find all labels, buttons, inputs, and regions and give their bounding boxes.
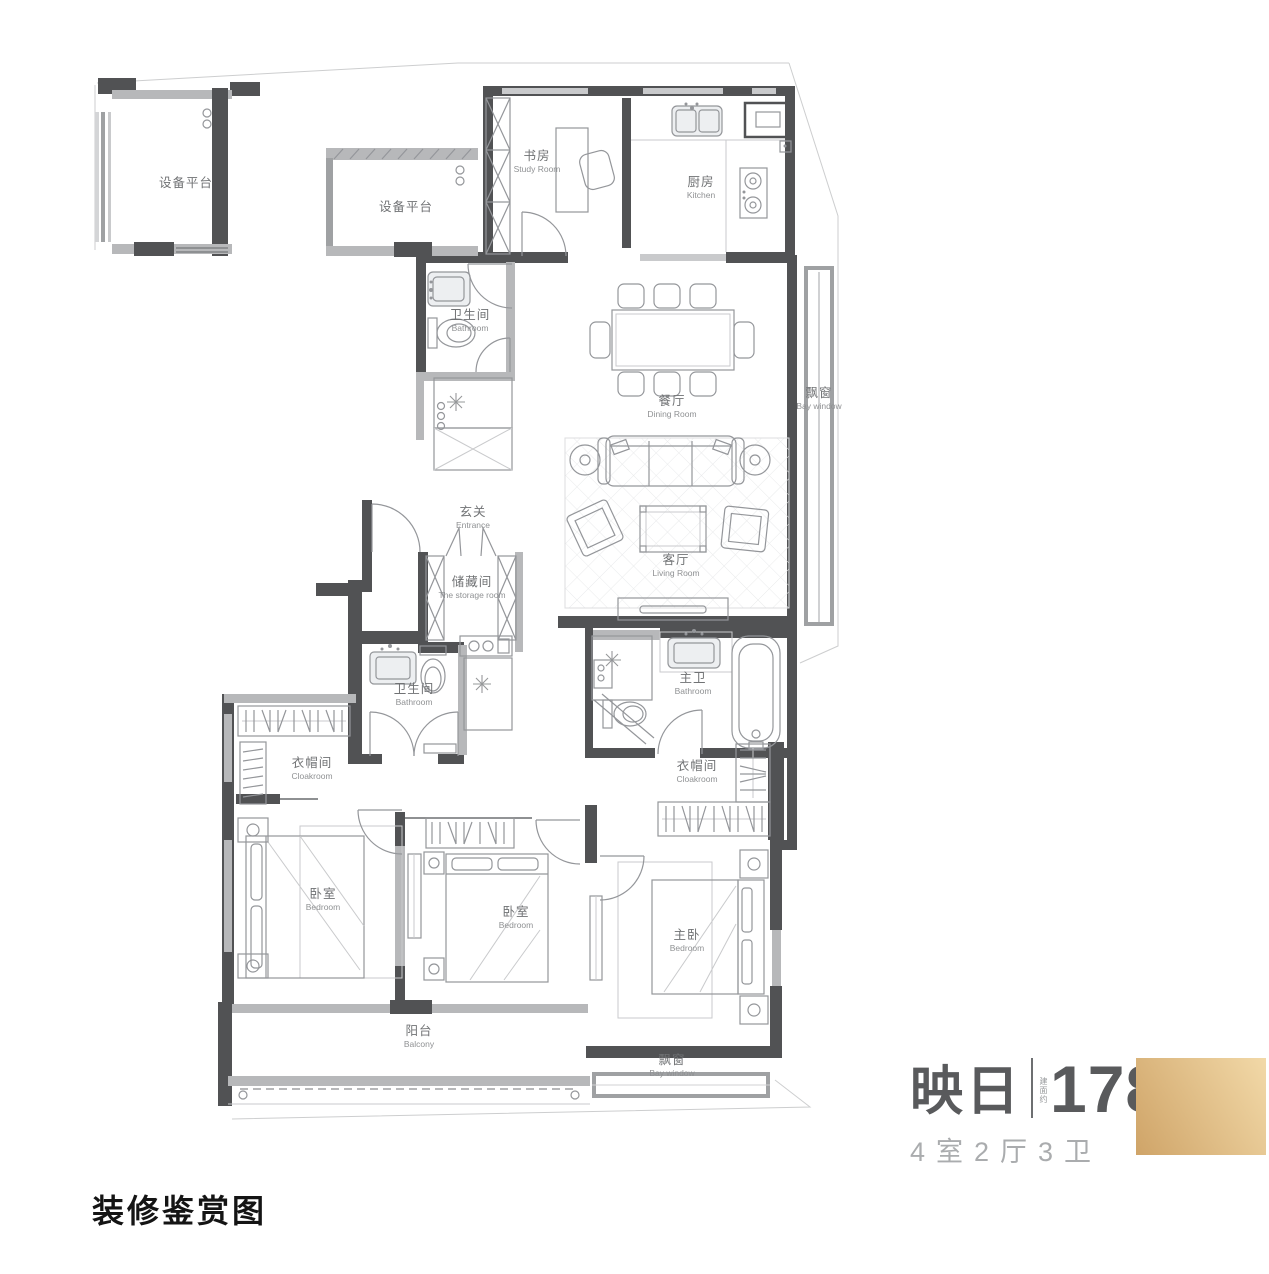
kitchen-furniture xyxy=(631,103,791,253)
toilet-icon xyxy=(428,318,475,348)
wardrobe-icon xyxy=(426,818,514,848)
cabinet-icon xyxy=(594,660,612,688)
wardrobe-icon xyxy=(658,802,770,836)
master-bedroom-furniture xyxy=(590,850,768,1024)
nightstand-icon xyxy=(740,850,768,878)
bed-icon xyxy=(652,880,764,994)
dining-chairs-icon xyxy=(590,284,754,396)
appliance-icon xyxy=(745,103,791,152)
bathtub-icon xyxy=(732,636,780,749)
cloakroom-left-furniture xyxy=(238,706,350,804)
nightstand-icon xyxy=(424,958,444,980)
desk-chair-icon xyxy=(578,149,616,192)
kitchen-sink-icon xyxy=(672,103,722,137)
door-icon xyxy=(476,338,510,372)
toilet-icon xyxy=(420,646,446,693)
door-icon xyxy=(600,856,644,900)
door-icon xyxy=(414,712,458,756)
unit-name: 映日 xyxy=(910,1065,1022,1118)
master-bathroom-furniture xyxy=(592,629,780,754)
bathroom-upper-furniture xyxy=(428,264,512,470)
bed-icon xyxy=(246,836,364,978)
bench-icon xyxy=(424,744,456,753)
sink-icon xyxy=(370,644,416,684)
rug-icon xyxy=(300,826,402,978)
wardrobe-icon xyxy=(238,706,350,736)
page-caption: 装修鉴赏图 xyxy=(92,1186,267,1232)
door-icon xyxy=(536,820,580,864)
bedroom-left-furniture xyxy=(238,810,402,978)
toilet-icon xyxy=(603,700,646,728)
stove-icon xyxy=(740,168,767,218)
closet-icon xyxy=(426,556,444,640)
bathroom-lower-furniture xyxy=(370,644,458,756)
nightstand-icon xyxy=(238,954,268,978)
bed-icon xyxy=(446,854,548,982)
nightstand-icon xyxy=(238,818,268,842)
flue-shaft-icon xyxy=(434,378,512,470)
legend-divider xyxy=(1031,1058,1033,1118)
door-icon xyxy=(370,712,414,756)
dresser-icon xyxy=(590,896,602,980)
double-door-icon xyxy=(446,528,496,556)
door-icon xyxy=(658,710,702,754)
study-door-icon xyxy=(522,212,566,256)
shower-icon xyxy=(592,636,654,744)
laundry-counter-icon xyxy=(460,636,512,656)
closet-icon xyxy=(498,556,516,640)
dining-room-furniture xyxy=(590,284,754,396)
bedroom-middle-furniture xyxy=(408,818,580,982)
entry-door-icon xyxy=(372,504,420,552)
flue-shaft-icon xyxy=(464,658,512,730)
nightstand-icon xyxy=(740,996,768,1024)
study-room-furniture xyxy=(486,98,616,256)
color-swatch xyxy=(1136,1058,1266,1155)
shelf-icon xyxy=(408,854,421,938)
desk-icon xyxy=(556,128,588,212)
storage-room-furniture xyxy=(426,528,516,730)
dining-table-icon xyxy=(612,310,734,370)
living-room-furniture xyxy=(565,436,789,620)
area-prefix: 建面约 xyxy=(1038,1077,1049,1113)
sink-icon xyxy=(428,272,470,306)
nightstand-icon xyxy=(424,852,444,874)
door-icon xyxy=(468,264,512,308)
